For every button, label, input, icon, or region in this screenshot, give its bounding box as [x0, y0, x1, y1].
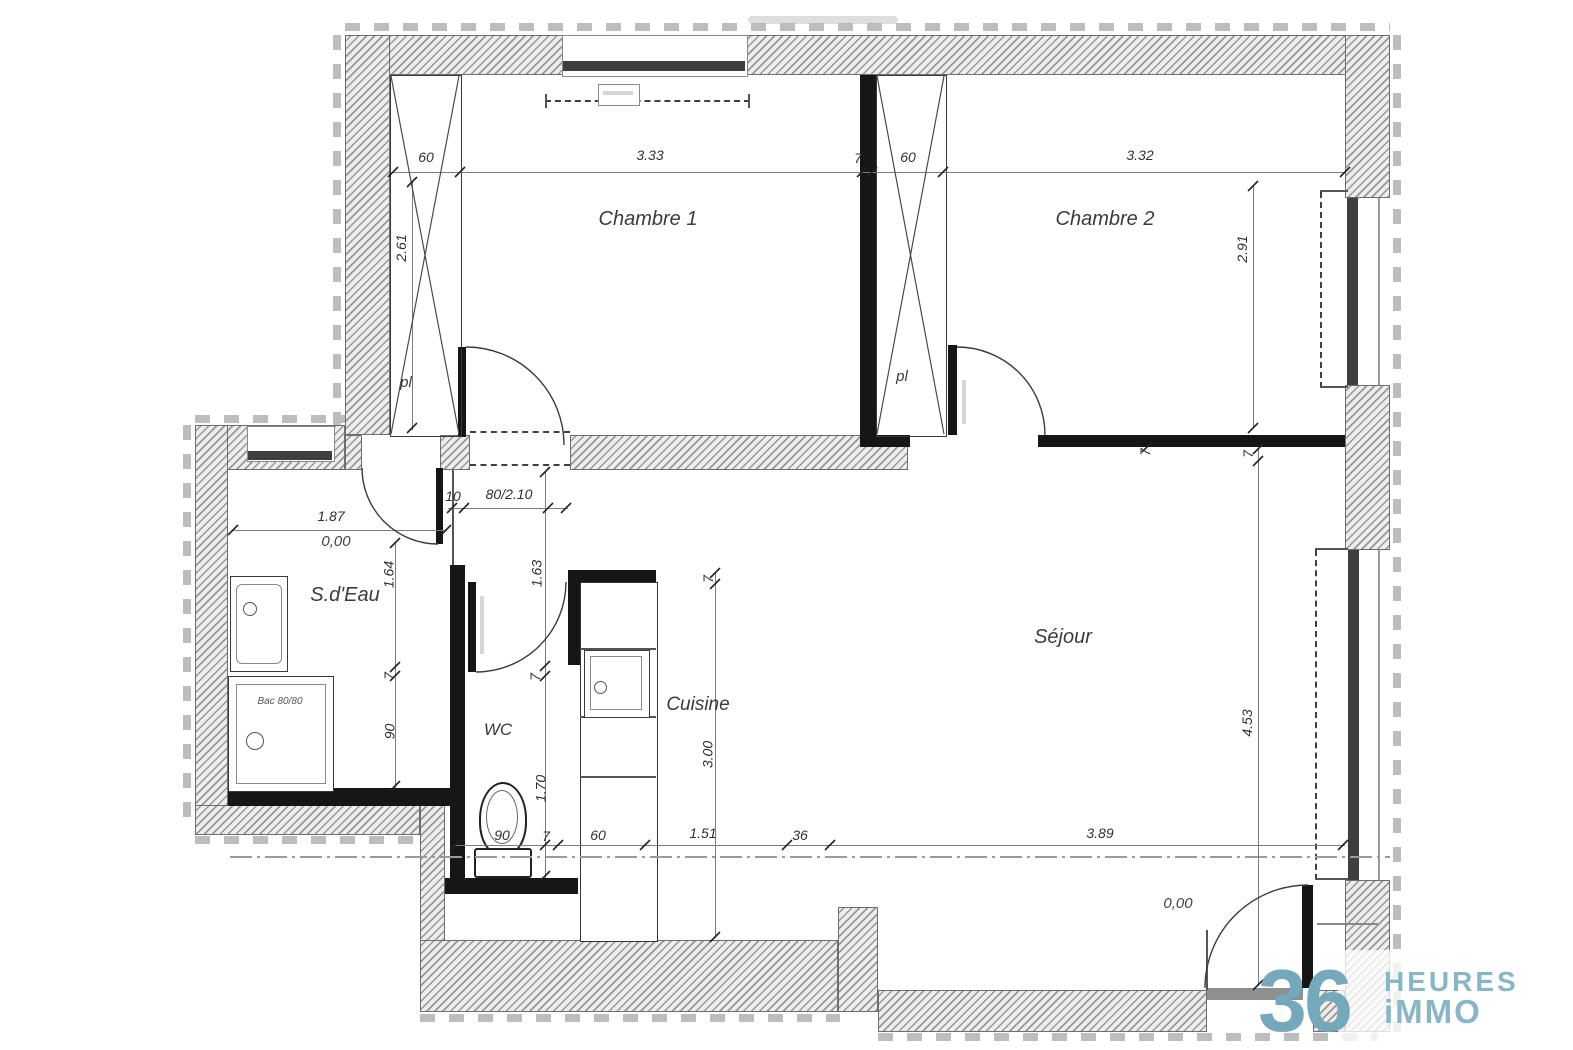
level-entrance: 0,00: [1147, 896, 1209, 914]
wall-bottom-band-b: [878, 990, 1207, 1032]
wall-bedroom-bottom-c: [570, 435, 908, 470]
dim-hall-wall1: 7: [528, 665, 542, 689]
dimline-top: [393, 172, 1345, 173]
window-sejour: [1345, 550, 1390, 880]
room-label-sejour: Séjour: [988, 626, 1138, 652]
wall-sdeau-right: [450, 565, 465, 880]
shower-drain: [246, 732, 264, 750]
room-label-cuisine: Cuisine: [640, 694, 756, 718]
opening-dash-top: [470, 431, 570, 433]
dimline-bottom: [455, 845, 1345, 846]
dim-sdeau-w: 1.87: [296, 509, 366, 526]
dim-sejour-h: 4.53: [1240, 693, 1256, 753]
dimline-chambre2-v: [1253, 186, 1254, 428]
window-chambre2: [1345, 198, 1390, 385]
closet-label-1: pl: [388, 374, 424, 394]
dim-wc-len: 1.70: [534, 759, 549, 819]
plan-linework: [0, 0, 1573, 1050]
window-chambre2-dash: [1320, 192, 1322, 388]
door-jamb-entrance: [1206, 930, 1208, 990]
shower-label: Bac 80/80: [240, 696, 320, 709]
window-chambre2-dash-bottom: [1320, 386, 1348, 388]
window-chambre2-frame: [1347, 198, 1358, 385]
wall-chambre2-bottom: [1038, 435, 1345, 447]
dim-hall-len1: 1.63: [530, 544, 545, 604]
room-label-chambre1: Chambre 1: [558, 208, 738, 234]
door-tag-chambre1: [480, 596, 484, 654]
dimline-sejour-v: [1258, 449, 1259, 986]
floor-plan: Bac 80/80: [0, 0, 1573, 1050]
door-leaf-wc: [468, 582, 476, 672]
dim-counter-w: 60: [578, 828, 618, 844]
wall-right-a: [1345, 35, 1390, 198]
dim-hall-door: 80/2.10: [474, 487, 544, 503]
wall-bedroom-bottom-b: [440, 435, 470, 470]
sink-sdeau-basin: [236, 584, 282, 664]
dim-wc-w: 90: [484, 828, 520, 844]
wall-bottom-band-a: [420, 940, 838, 1012]
logo-word-immo: iMMO: [1384, 995, 1569, 1028]
dim-closet1-h: 2.61: [394, 218, 410, 278]
dimline-hall-door: [448, 508, 568, 509]
wall-right-b: [1345, 385, 1390, 550]
dim-chambre2-wall: 7: [1138, 440, 1152, 464]
kitchen-counter: [580, 582, 658, 942]
outer-dashes-bottom-a: [420, 1014, 840, 1022]
axis-line: [230, 856, 1390, 858]
door-arc-chambre2: [957, 347, 1045, 435]
lintel-tag-box: [598, 84, 640, 106]
window-sejour-dash: [1315, 550, 1317, 880]
dim-closet1-w: 60: [398, 150, 454, 166]
outer-dashes-right: [1393, 35, 1401, 1032]
opening-dash-bottom: [470, 464, 570, 466]
window-sejour-dash-bottom: [1315, 878, 1348, 880]
wall-kitchen-top: [568, 570, 656, 582]
dim-step: 36: [780, 828, 820, 844]
window-sdeau: [247, 426, 335, 462]
dim-cuisine-depth: 3.00: [701, 725, 716, 785]
sink-sdeau-drain: [243, 602, 257, 616]
wall-strip-left-bottom: [420, 790, 445, 945]
dim-sdeau-len: 1.64: [382, 545, 397, 605]
wall-bedroom-bottom-a: [345, 435, 362, 470]
wall-bottom-step: [838, 907, 878, 1012]
window-sejour-sill-line: [1317, 923, 1378, 925]
door-arc-sdeau: [362, 468, 438, 544]
window-sejour-dash-top: [1315, 548, 1348, 550]
wall-divider-bedrooms: [860, 75, 876, 435]
window-chambre2-line: [1378, 198, 1380, 385]
logo-number: 36: [1258, 958, 1398, 1044]
door-arc-wc: [476, 582, 566, 672]
dim-chambre2-w: 3.32: [1100, 148, 1180, 164]
outer-dashes-left-lower: [183, 425, 191, 823]
dim-chambre1-w: 3.33: [610, 148, 690, 164]
door-tag-chambre2: [962, 380, 966, 424]
dim-sdeau-wall: 7: [382, 664, 396, 688]
kitchen-counter-div3: [580, 776, 656, 778]
lintel-dash-chambre1: [545, 100, 750, 102]
outer-dashes-top: [345, 23, 1390, 31]
level-sdeau: 0,00: [303, 534, 369, 552]
wall-kitchen-left: [568, 570, 580, 665]
dim-kitchen-w: 1.51: [675, 826, 731, 843]
wall-top-right: [745, 35, 1390, 75]
dim-sejour-wall: 7: [1241, 442, 1255, 466]
window-chambre1-frame: [563, 61, 745, 71]
title-smudge-top: [748, 16, 898, 24]
wall-sdeau-left: [195, 425, 228, 820]
outer-dashes-left-bedroom: [333, 35, 341, 435]
closet-label-2: pl: [884, 368, 920, 388]
lintel-end-left: [545, 94, 547, 108]
logo-word-heures: HEURES: [1384, 969, 1569, 994]
door-leaf-sdeau: [436, 468, 443, 544]
room-label-wc: WC: [470, 720, 526, 742]
room-label-chambre2: Chambre 2: [1015, 208, 1195, 234]
wall-sdeau-bottom: [195, 805, 420, 835]
dim-top-wall: 7: [846, 151, 870, 166]
dim-bottom-wall: 7: [536, 829, 556, 843]
dimline-sdeau-w: [233, 530, 447, 531]
outer-dashes-sdeau-top: [195, 415, 345, 423]
window-sejour-line: [1378, 550, 1380, 880]
wall-sdeau-hall-line: [452, 470, 454, 565]
wall-wc-bottom: [445, 878, 578, 894]
window-chambre1: [562, 35, 748, 77]
dim-hall-gap: 10: [440, 489, 466, 505]
kitchen-sink-drain: [594, 681, 607, 694]
dim-sejour-w: 3.89: [1065, 826, 1135, 843]
dim-chambre2-h: 2.91: [1235, 219, 1251, 279]
dim-cuisine-wall: 7: [701, 567, 715, 591]
toilet-tank: [474, 848, 532, 878]
door-leaf-chambre2: [948, 345, 957, 435]
lintel-tag-smudge: [603, 91, 633, 95]
window-sdeau-frame: [248, 451, 332, 460]
lintel-end-right: [748, 94, 750, 108]
window-sejour-frame: [1348, 550, 1359, 880]
window-chambre2-dash-top: [1320, 190, 1348, 192]
dim-shower-w: 90: [383, 717, 398, 747]
dim-closet2-w: 60: [878, 150, 938, 166]
outer-dashes-sdeau-bottom: [195, 836, 453, 844]
wall-left-bedrooms: [345, 35, 390, 435]
